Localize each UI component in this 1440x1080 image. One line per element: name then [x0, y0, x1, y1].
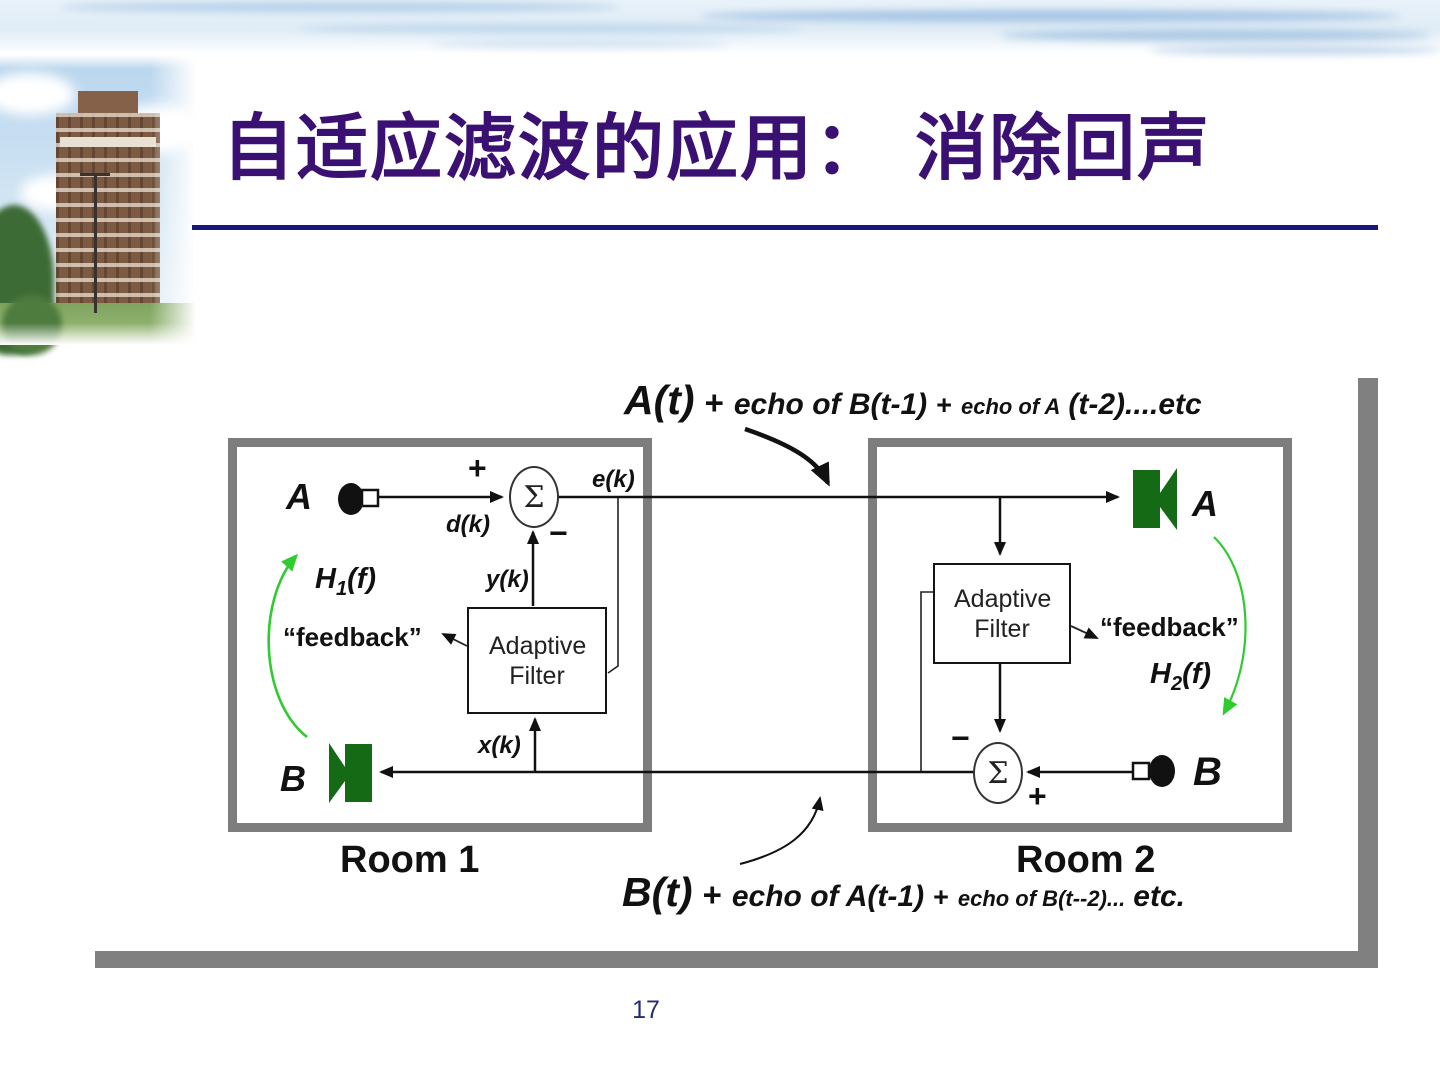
cloud-streak — [300, 24, 800, 33]
room1-plus-sign: + — [468, 450, 487, 487]
photo-fade — [150, 55, 196, 345]
xk-label: x(k) — [478, 732, 521, 760]
cloud — [0, 73, 75, 115]
h1-rest: (f) — [347, 563, 376, 595]
h1-base: H — [315, 563, 336, 595]
room2-minus-sign: − — [951, 720, 970, 757]
cloud-streak — [1000, 30, 1430, 41]
page-title: 自适应滤波的应用： 消除回声 — [222, 108, 1211, 187]
room2-mic-label: B — [1193, 750, 1222, 795]
room1-transfer-label: H1(f) — [315, 563, 376, 601]
building-roof — [78, 91, 138, 115]
cloud-streak — [700, 10, 1400, 22]
room2-speaker-label: A — [1192, 483, 1218, 525]
plus-sign: + — [703, 876, 722, 914]
h2-base: H — [1150, 658, 1171, 690]
adaptive-filter-room2: Adaptive Filter — [933, 563, 1071, 664]
cloud-streak — [60, 2, 620, 12]
top-annotation-arrow — [745, 429, 828, 483]
ek-label: e(k) — [592, 466, 635, 494]
adaptive-filter-room1: Adaptive Filter — [467, 607, 607, 714]
bottom-annotation: B(t) + echo of A(t-1) + echo of B(t--2).… — [622, 869, 1185, 916]
lamp-post — [94, 173, 97, 313]
bottom-annotation-part4: etc. — [1133, 880, 1185, 914]
room2-transfer-label: H2(f) — [1150, 658, 1211, 696]
adaptive-filter-room2-label: Adaptive Filter — [954, 584, 1050, 644]
plus-sign: + — [933, 882, 949, 913]
photo-fade — [0, 323, 196, 345]
adaptive-filter-room1-label: Adaptive Filter — [489, 631, 585, 691]
sky-banner — [0, 0, 1440, 54]
top-annotation-part3: echo of A — [961, 394, 1060, 420]
frame-bottom-bar — [95, 951, 1378, 968]
h2-rest: (f) — [1182, 658, 1211, 690]
yk-label: y(k) — [486, 566, 529, 594]
plus-sign: + — [705, 384, 724, 422]
room2-feedback-label: “feedback” — [1100, 612, 1239, 643]
building-band — [60, 137, 156, 147]
bottom-annotation-main: B(t) — [622, 869, 693, 916]
room1-caption: Room 1 — [340, 839, 479, 882]
frame-right-bar — [1358, 378, 1378, 968]
title-underline — [192, 225, 1378, 230]
room1-minus-sign: − — [549, 515, 568, 552]
room1-feedback-label: “feedback” — [283, 622, 422, 653]
bottom-annotation-arrow — [740, 798, 820, 864]
cloud-streak — [1150, 46, 1440, 55]
h2-sub: 2 — [1171, 673, 1182, 695]
dk-label: d(k) — [446, 511, 490, 539]
room1-mic-label: A — [286, 476, 312, 518]
top-annotation-part2: echo of B(t-1) — [734, 388, 927, 422]
top-annotation-part4: (t-2)....etc — [1068, 388, 1201, 422]
bottom-annotation-part2: echo of A(t-1) — [732, 880, 924, 914]
cloud-streak — [430, 40, 730, 48]
room2-plus-sign: + — [1028, 778, 1047, 815]
sum-node-room2: Σ — [973, 742, 1023, 804]
h1-sub: 1 — [336, 578, 347, 600]
top-annotation: A(t) + echo of B(t-1) + echo of A (t-2).… — [624, 377, 1202, 424]
bottom-annotation-part3: echo of B(t--2)... — [958, 886, 1125, 912]
page-number: 17 — [616, 996, 676, 1025]
room1-speaker-label: B — [280, 758, 306, 800]
slide: 自适应滤波的应用： 消除回声 — [0, 0, 1440, 1080]
top-annotation-main: A(t) — [624, 377, 695, 424]
campus-photo — [0, 55, 196, 345]
plus-sign: + — [936, 390, 952, 421]
